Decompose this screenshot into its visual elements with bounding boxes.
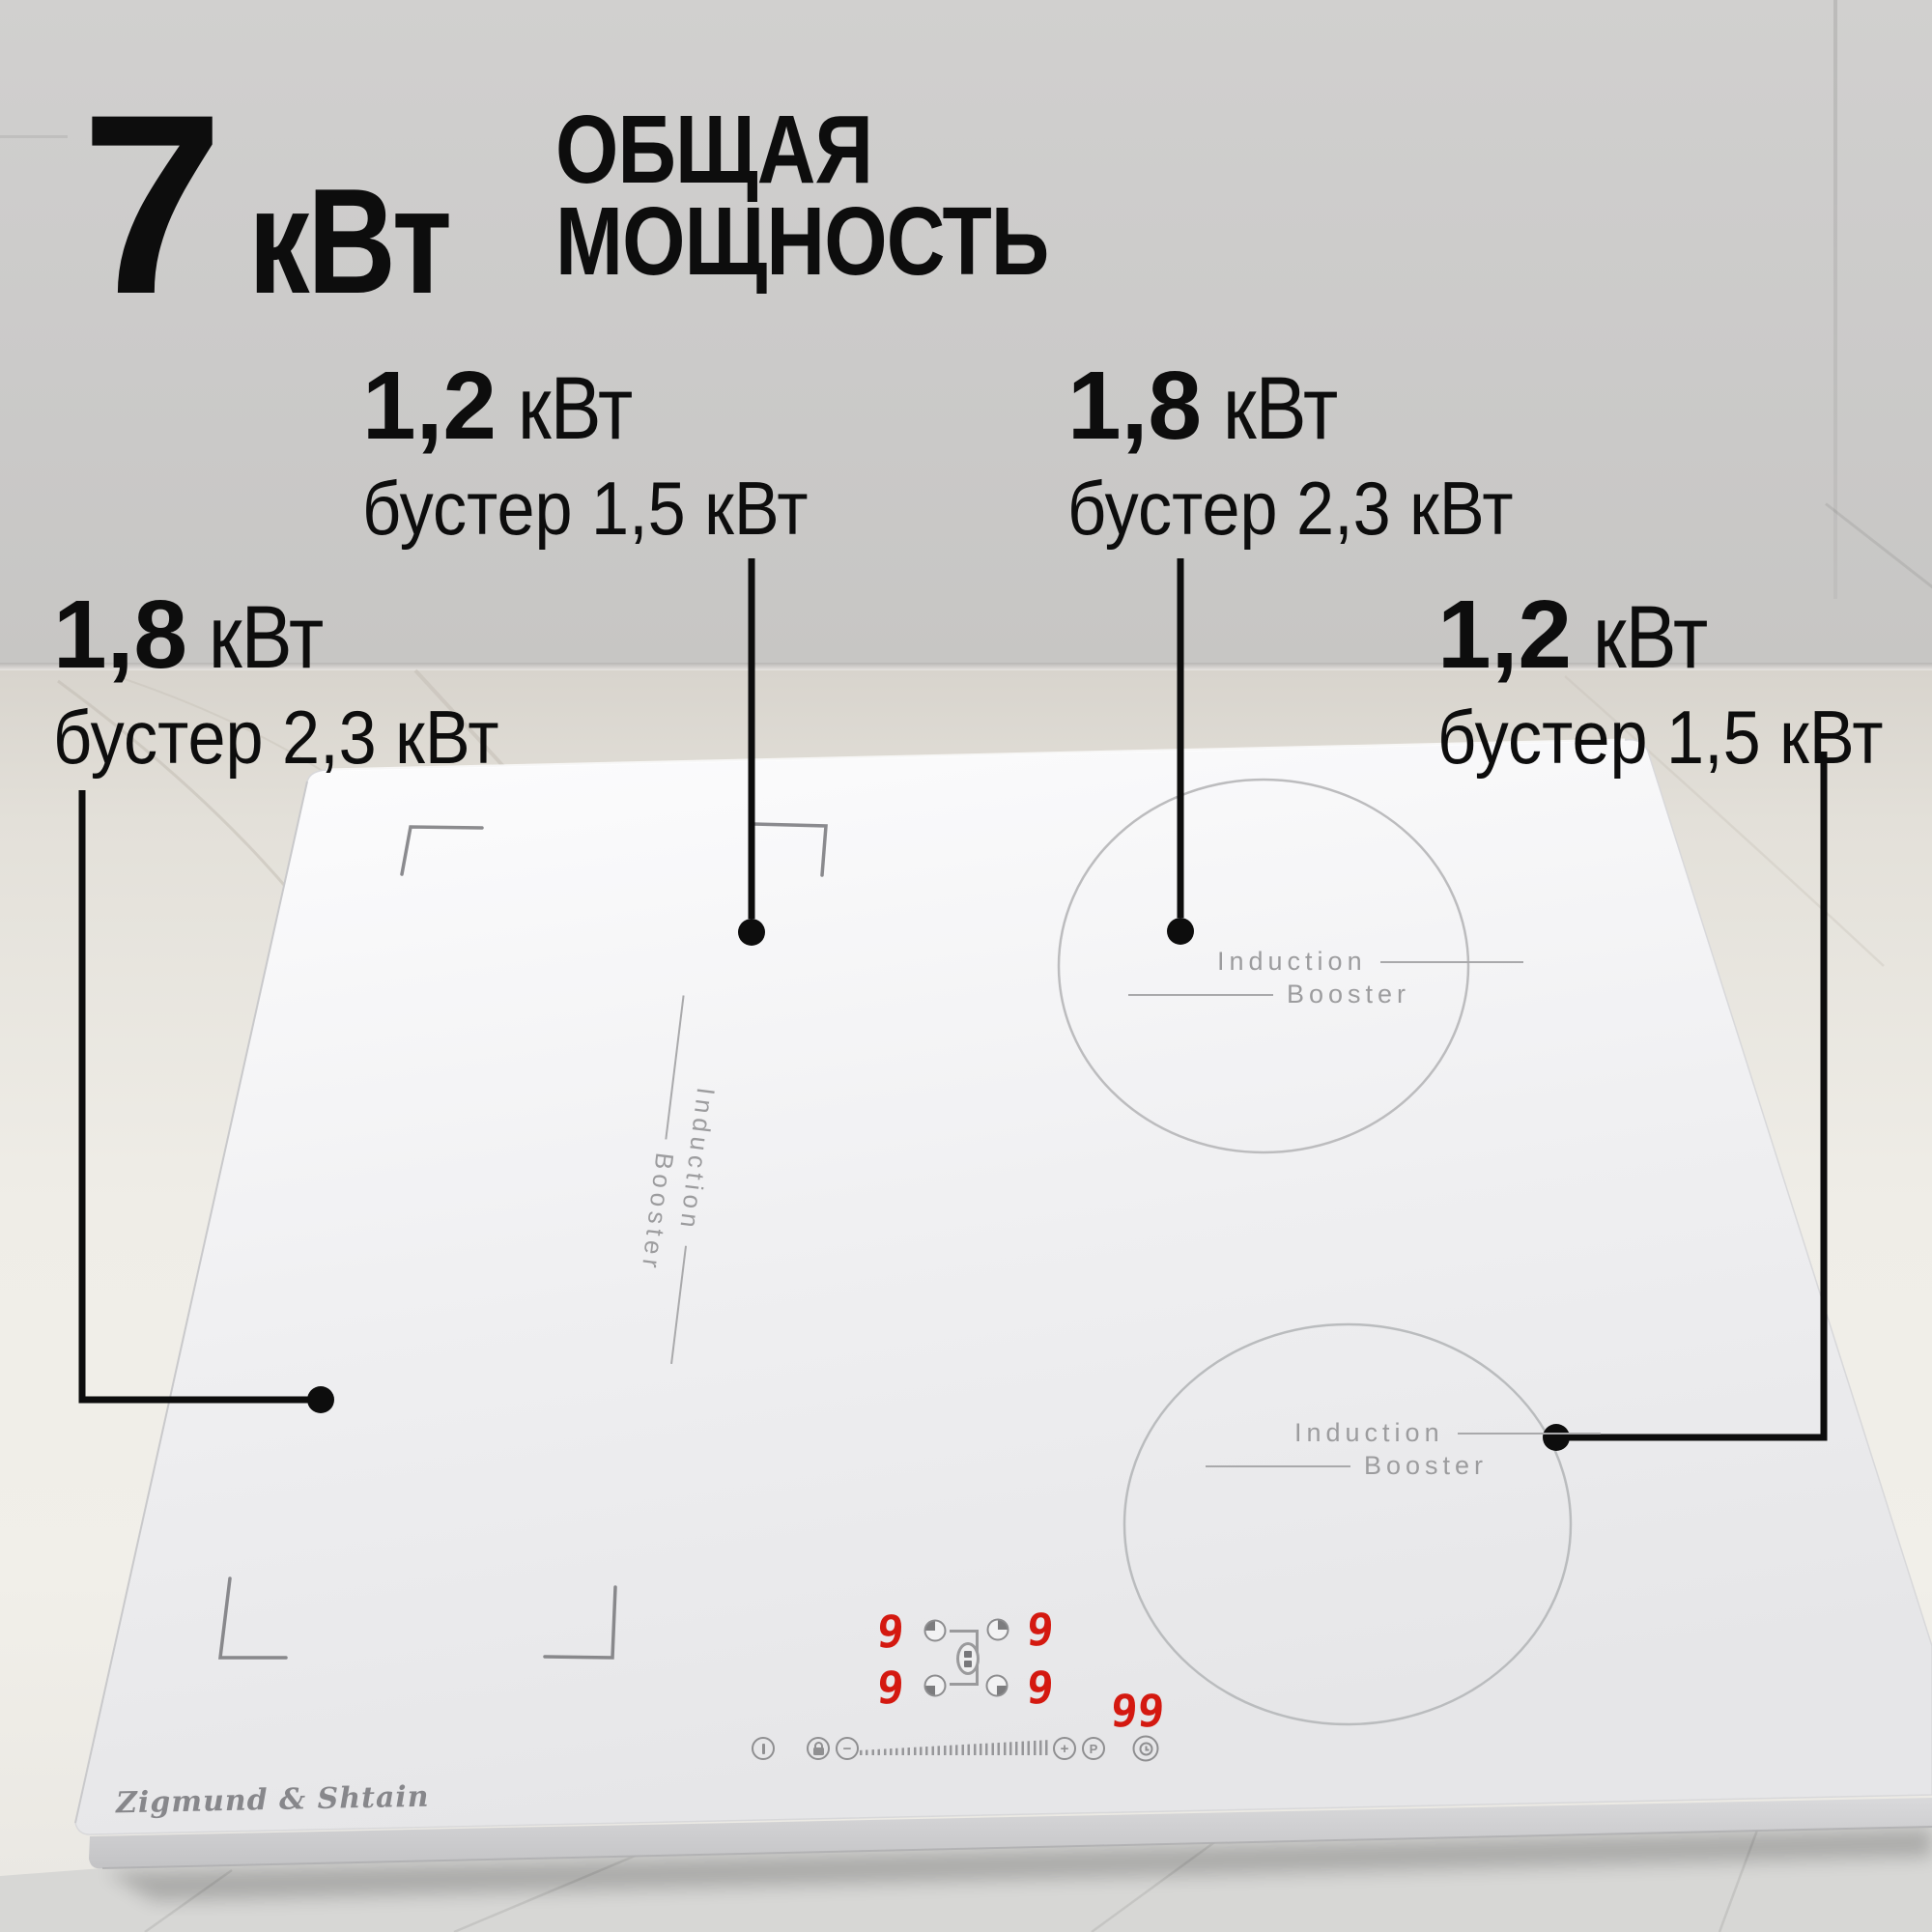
brand-logo: Zigmund & Shtain — [116, 1780, 430, 1821]
callout-top-right: 1,8кВт бустер 2,3 кВт — [1067, 357, 1563, 546]
zone-indicator-bottom-right-icon — [986, 1675, 1009, 1697]
header-title: ОБЩАЯ МОЩНОСТЬ — [555, 104, 1048, 288]
plus-icon: + — [1053, 1737, 1076, 1760]
zone-label-rule — [1380, 961, 1523, 963]
callout-power-row: 1,8кВт — [53, 586, 549, 683]
callout-power-unit: кВт — [518, 364, 632, 453]
zone-label-induction: Induction — [1294, 1418, 1444, 1448]
callout-booster-text: бустер 2,3 кВт — [53, 699, 498, 775]
callout-power-value: 1,8 — [1067, 352, 1202, 460]
callout-top-left: 1,2кВт бустер 1,5 кВт — [362, 357, 858, 546]
total-power-header: 7 кВт — [81, 77, 495, 333]
zone-indicator-bottom-left-icon — [924, 1675, 947, 1697]
callout-booster-text: бустер 2,3 кВт — [1067, 470, 1513, 546]
product-image: 7 кВт ОБЩАЯ МОЩНОСТЬ 1,2кВт бустер 1,5 к… — [0, 0, 1932, 1932]
power-icon — [752, 1737, 775, 1760]
zone-label-rule — [1458, 1433, 1601, 1435]
zone-label-booster: Booster — [1364, 1451, 1488, 1481]
zone-indicator-top-left-icon — [924, 1620, 947, 1642]
program-icon: P — [1082, 1737, 1105, 1760]
callout-power-row: 1,8кВт — [1067, 357, 1563, 454]
cooktop-surface — [75, 740, 1932, 1834]
padlock-glyph — [813, 1742, 824, 1755]
zone-label-rule — [671, 1245, 688, 1364]
clock-glyph — [1139, 1742, 1152, 1755]
lock-icon — [807, 1737, 830, 1760]
callout-booster-text: бустер 1,5 кВт — [362, 470, 808, 546]
callout-booster-text: бустер 1,5 кВт — [1437, 699, 1883, 775]
power-bar-glyph — [762, 1744, 765, 1754]
timer-icon — [1133, 1736, 1159, 1762]
callout-power-value: 1,8 — [53, 581, 187, 689]
zone-label-bottom-right: Induction Booster — [1206, 1418, 1601, 1481]
callout-power-unit: кВт — [1593, 593, 1707, 682]
callout-power-value: 1,2 — [1437, 581, 1572, 689]
callout-power-row: 1,2кВт — [1437, 586, 1932, 683]
header-title-line1: ОБЩАЯ — [555, 104, 1048, 196]
callout-power-row: 1,2кВт — [362, 357, 858, 454]
callout-left: 1,8кВт бустер 2,3 кВт — [53, 586, 549, 775]
zone-indicator-top-right-icon — [987, 1619, 1009, 1641]
callout-right: 1,2кВт бустер 1,5 кВт — [1437, 586, 1932, 775]
zone-label-rule — [1128, 994, 1273, 996]
zone-label-induction: Induction — [1217, 947, 1367, 977]
callout-power-unit: кВт — [1223, 364, 1337, 453]
display-digit-zone-top-right: 9 — [1025, 1607, 1056, 1652]
display-digit-zone-bottom-left: 9 — [875, 1665, 906, 1710]
callout-power-unit: кВт — [209, 593, 323, 682]
display-timer-value: 99 — [1109, 1689, 1166, 1733]
minus-icon: − — [836, 1737, 859, 1760]
zone-label-rule — [666, 995, 685, 1139]
zone-label-top-right: Induction Booster — [1128, 947, 1523, 1009]
zone-label-booster: Booster — [1287, 980, 1410, 1009]
callout-power-value: 1,2 — [362, 352, 497, 460]
total-power-value: 7 — [81, 77, 223, 333]
display-digit-zone-bottom-right: 9 — [1025, 1665, 1056, 1710]
display-digit-zone-top-left: 9 — [875, 1609, 906, 1654]
zone-label-rule — [1206, 1465, 1350, 1467]
header-title-line2: МОЩНОСТЬ — [555, 196, 1048, 288]
total-power-unit: кВт — [248, 166, 450, 316]
bridge-link-icon — [956, 1642, 980, 1675]
